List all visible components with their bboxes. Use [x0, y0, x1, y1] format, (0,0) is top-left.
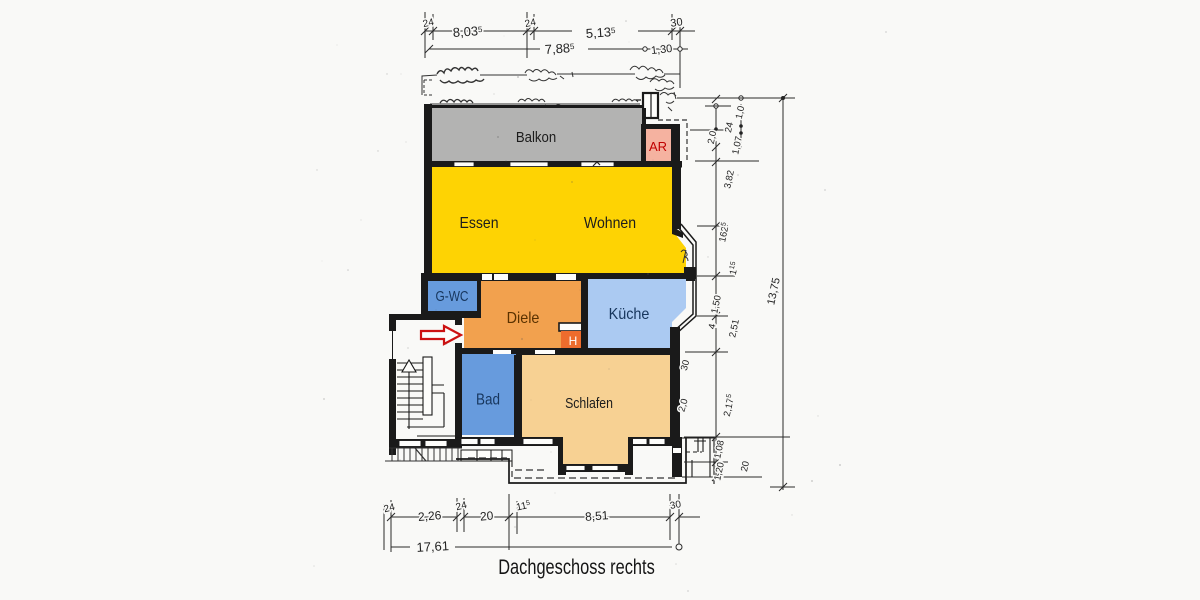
svg-text:Diele: Diele — [507, 309, 540, 327]
svg-text:Balkon: Balkon — [516, 128, 556, 145]
svg-text:1,30: 1,30 — [650, 43, 673, 57]
svg-text:24: 24 — [723, 121, 736, 134]
svg-text:H: H — [569, 334, 578, 348]
svg-text:20: 20 — [479, 508, 494, 523]
svg-text:Schlafen: Schlafen — [565, 395, 613, 411]
svg-text:30: 30 — [670, 16, 684, 30]
svg-text:Küche: Küche — [609, 305, 650, 323]
svg-text:8,51: 8,51 — [585, 508, 610, 524]
svg-text:2,26: 2,26 — [417, 508, 442, 524]
svg-text:Dachgeschoss rechts: Dachgeschoss rechts — [498, 555, 655, 578]
svg-text:Bad: Bad — [476, 392, 500, 409]
svg-text:Essen: Essen — [459, 214, 498, 232]
svg-text:AR: AR — [649, 139, 667, 154]
svg-text:Wohnen: Wohnen — [584, 214, 636, 232]
svg-text:20: 20 — [739, 460, 752, 473]
svg-text:G-WC: G-WC — [436, 288, 469, 304]
svg-text:17,61: 17,61 — [416, 538, 449, 555]
